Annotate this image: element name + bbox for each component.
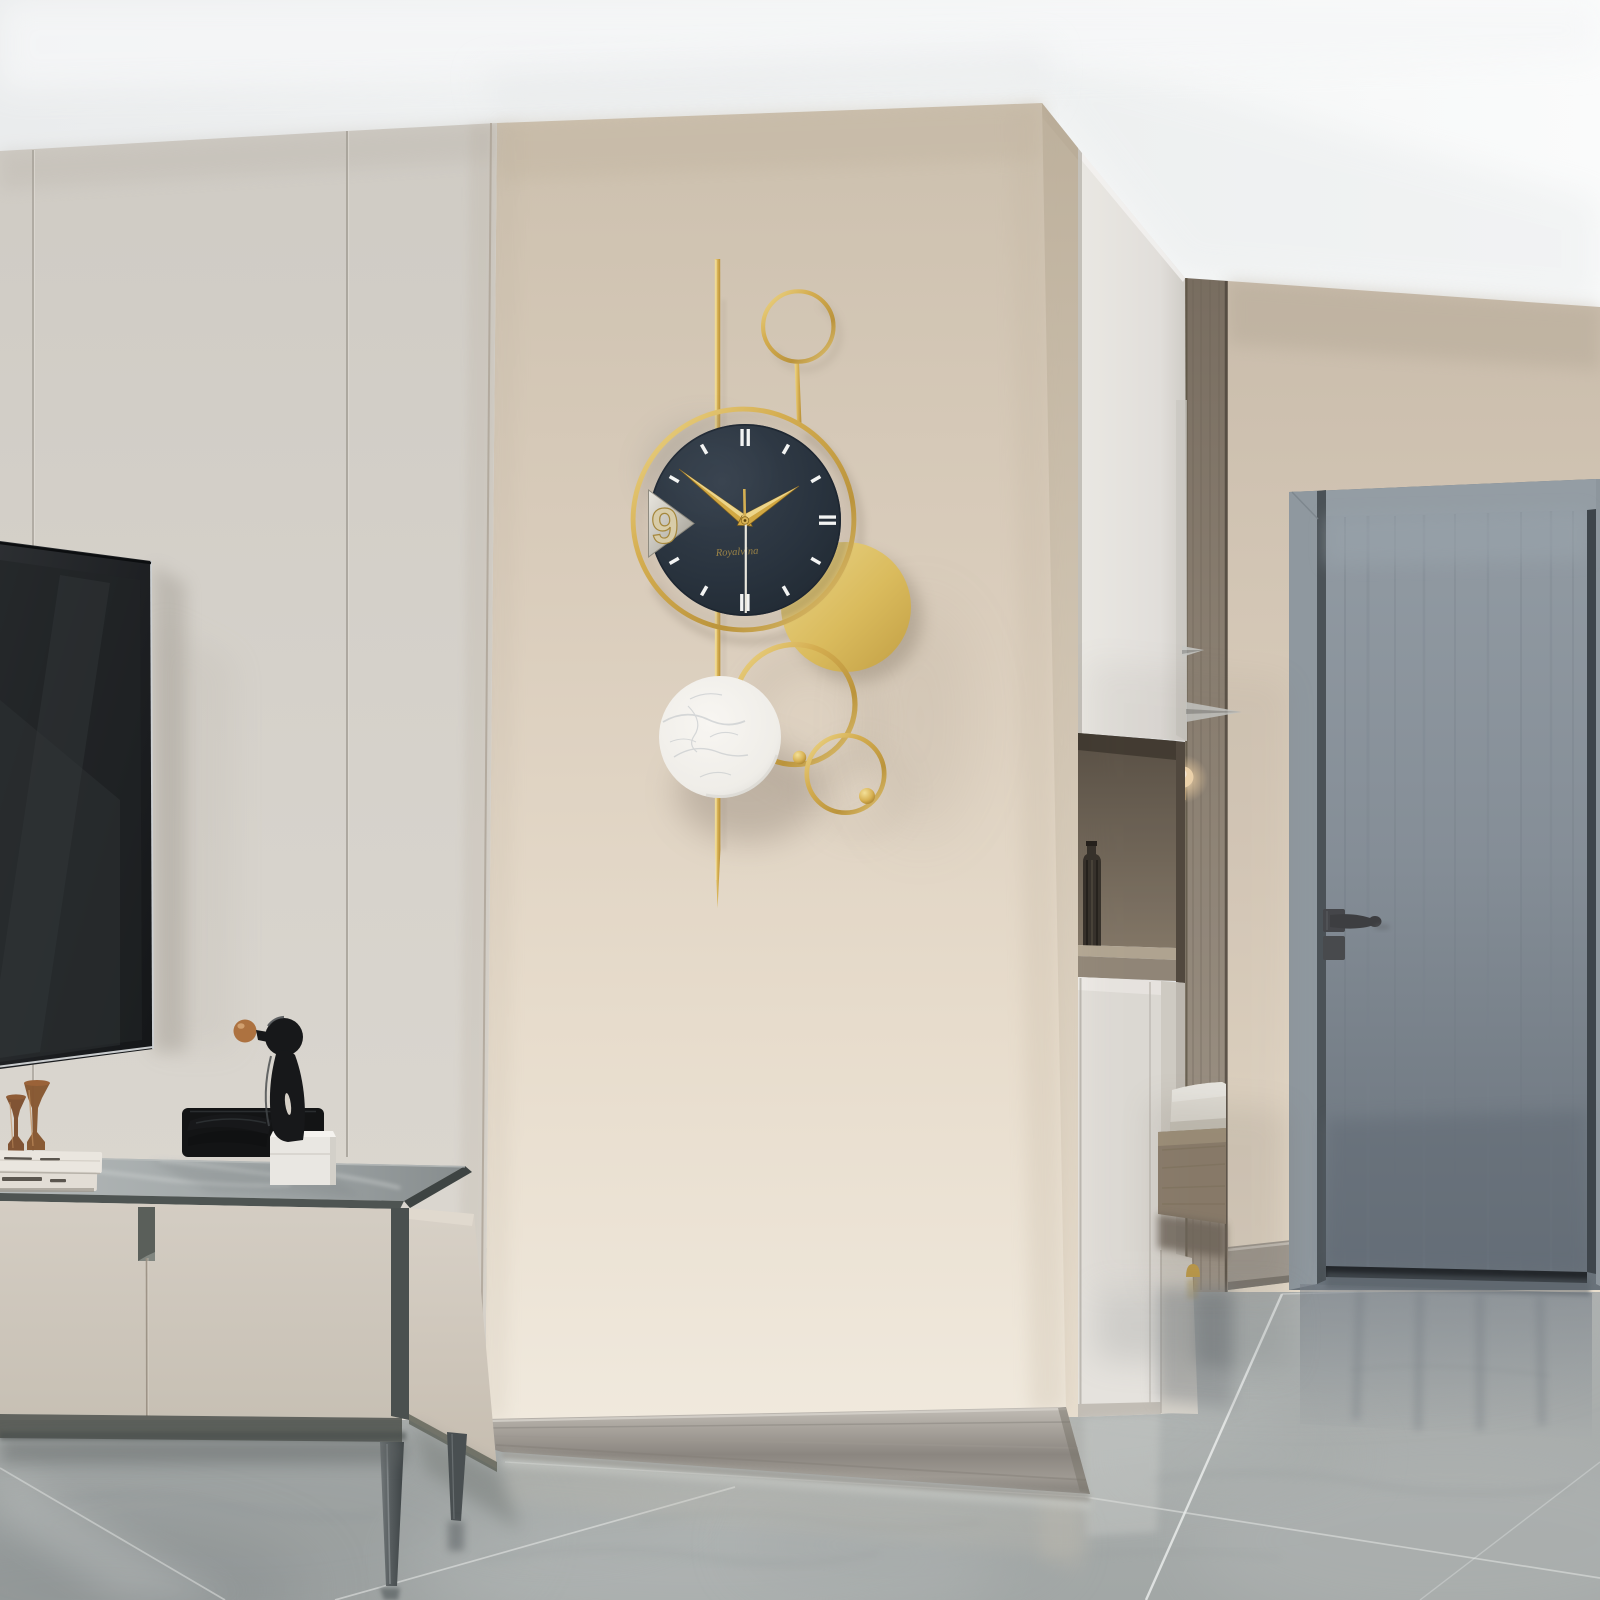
svg-text:9: 9 <box>651 498 679 554</box>
svg-text:Royalvina: Royalvina <box>715 546 759 559</box>
